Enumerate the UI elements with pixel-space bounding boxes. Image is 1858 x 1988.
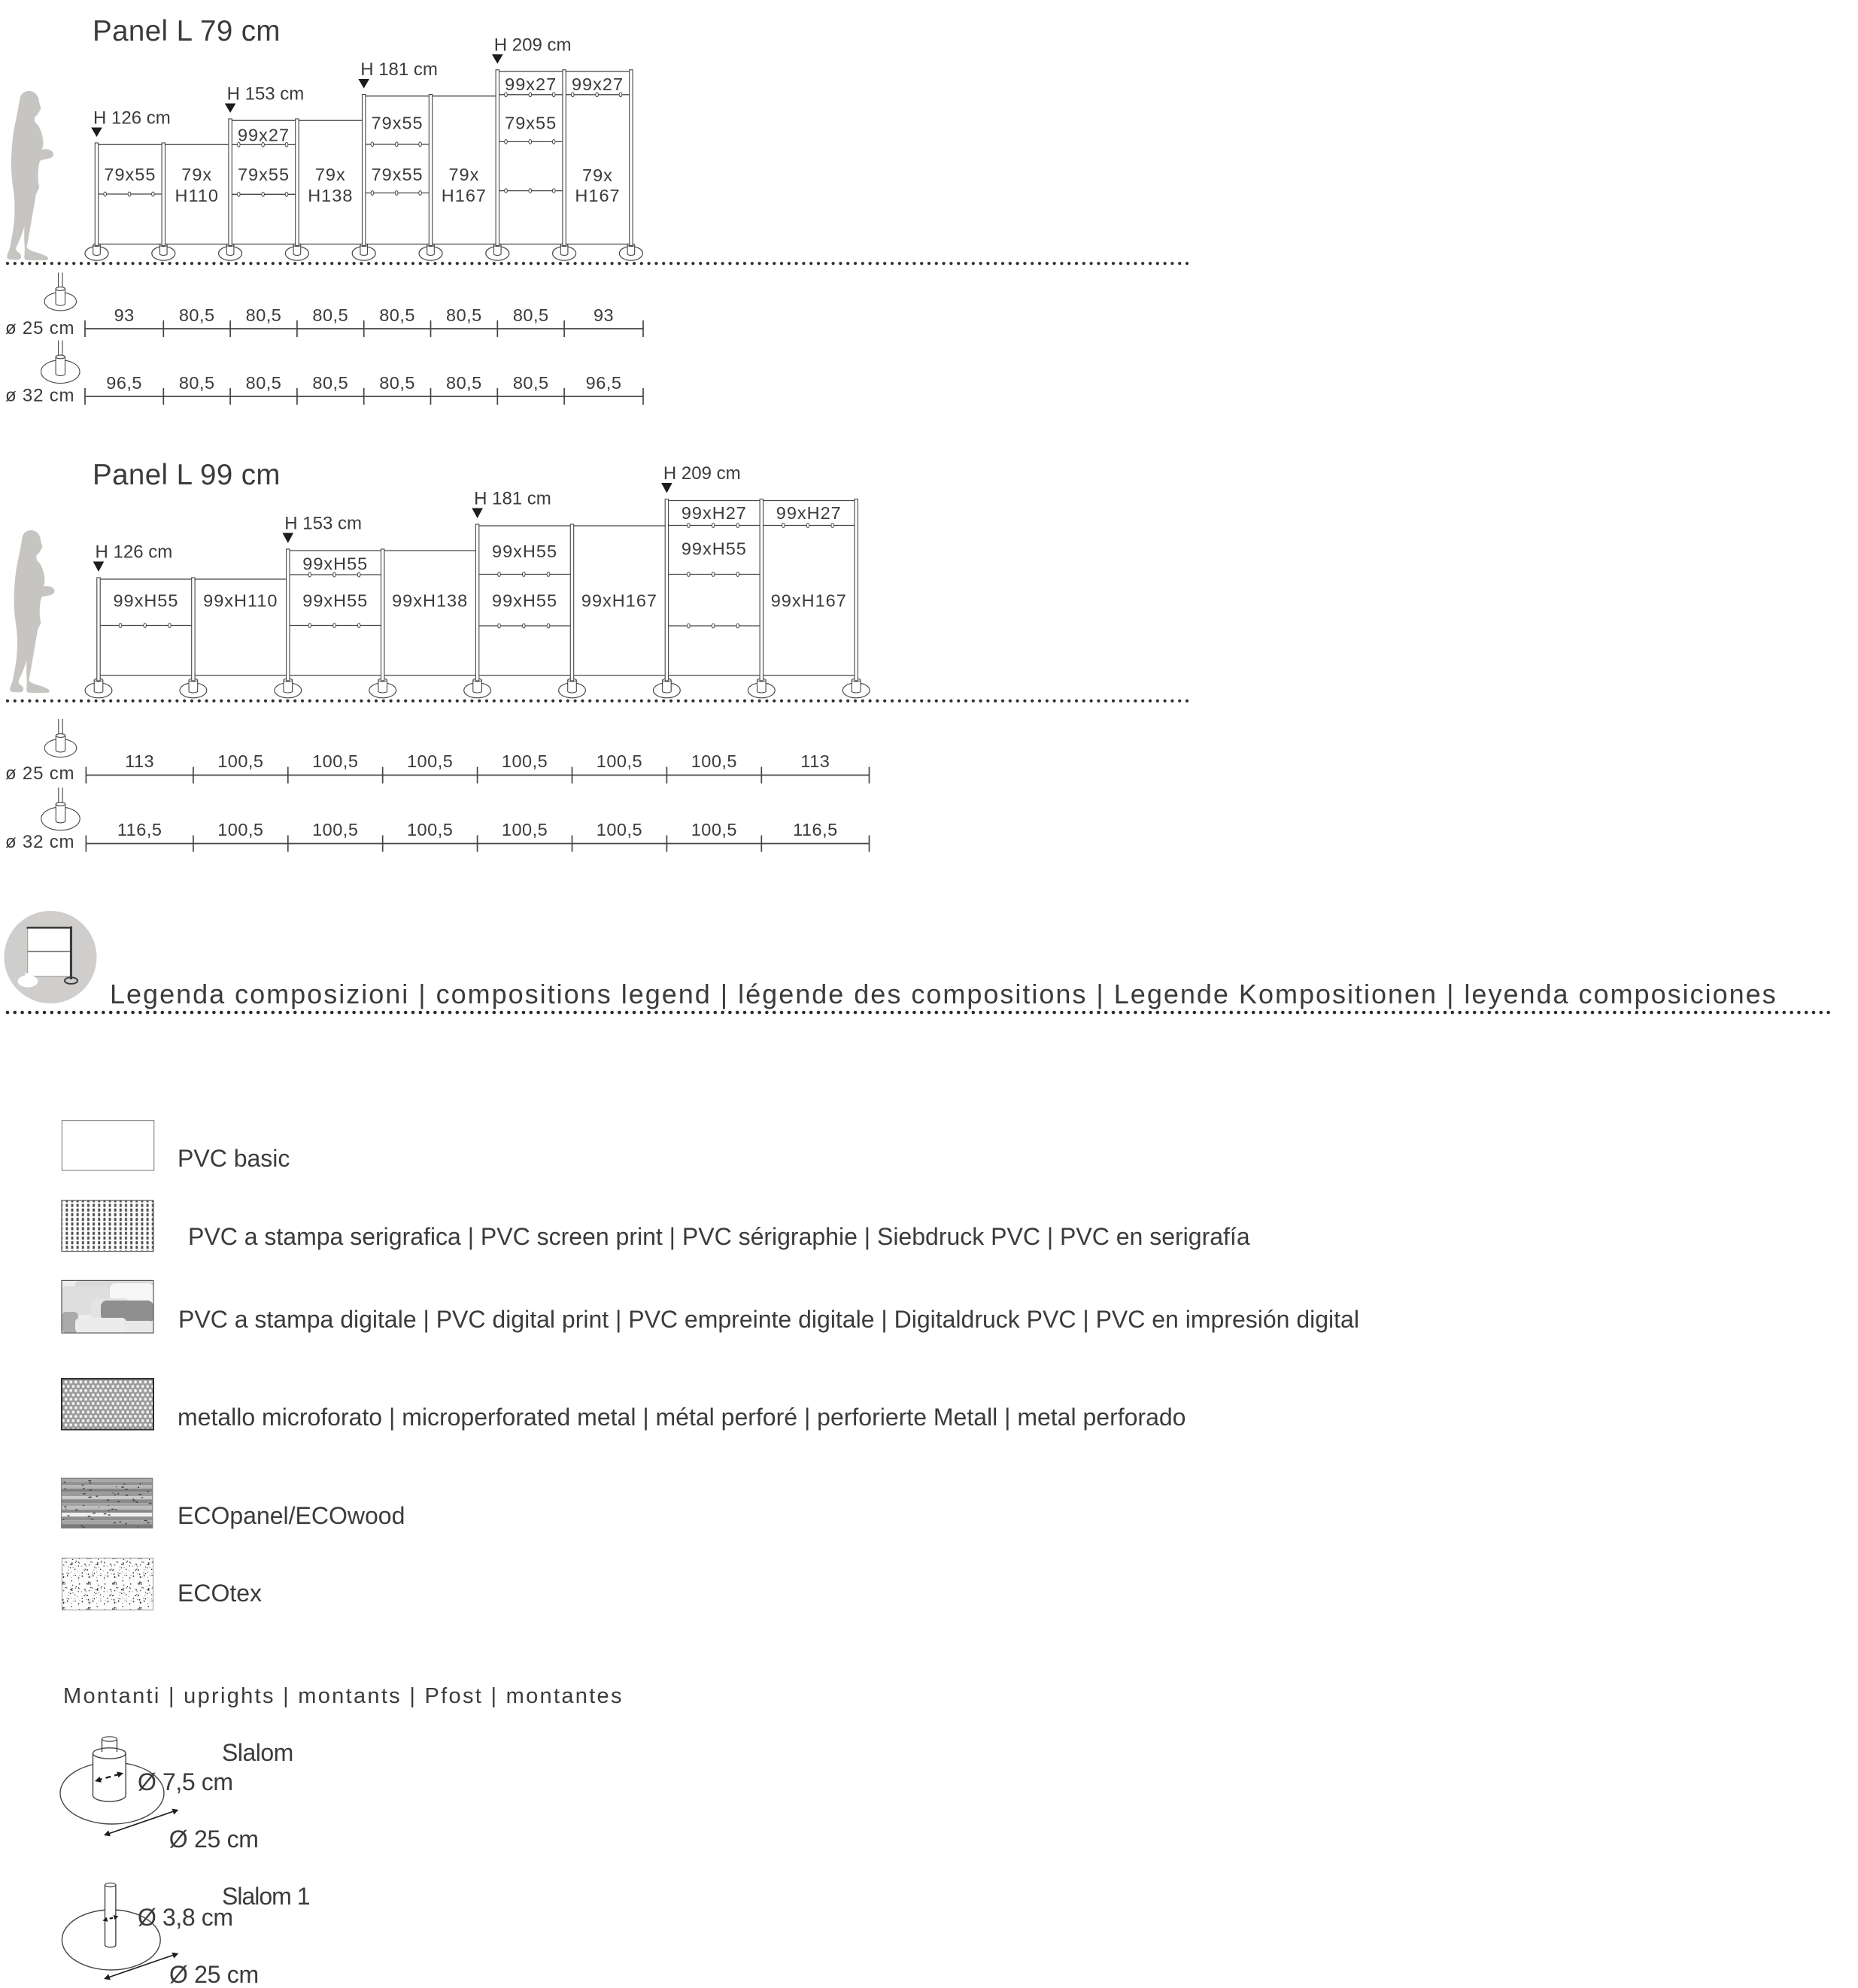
svg-text:ø 25 cm: ø 25 cm <box>5 318 74 338</box>
svg-text:99xH55: 99xH55 <box>113 591 178 611</box>
svg-text:100,5: 100,5 <box>597 820 642 839</box>
svg-text:Slalom 1: Slalom 1 <box>222 1883 310 1910</box>
svg-text:H110: H110 <box>175 186 218 205</box>
svg-text:H138: H138 <box>308 186 353 205</box>
svg-text:Panel L 99 cm: Panel L 99 cm <box>93 459 281 491</box>
svg-text:79x55: 79x55 <box>372 114 424 133</box>
svg-text:PVC a stampa serigrafica | PVC: PVC a stampa serigrafica | PVC screen pr… <box>188 1223 1250 1250</box>
svg-text:100,5: 100,5 <box>312 820 358 839</box>
svg-text:Ø 25 cm: Ø 25 cm <box>169 1826 259 1853</box>
svg-text:79x: 79x <box>582 165 613 185</box>
svg-text:H 153 cm: H 153 cm <box>284 514 362 534</box>
svg-text:79x: 79x <box>448 165 479 184</box>
svg-text:H167: H167 <box>442 186 487 205</box>
svg-text:80,5: 80,5 <box>179 373 215 393</box>
svg-text:80,5: 80,5 <box>246 305 282 325</box>
svg-text:80,5: 80,5 <box>379 373 415 393</box>
svg-text:100,5: 100,5 <box>502 820 548 839</box>
svg-text:99xH55: 99xH55 <box>302 554 368 574</box>
svg-text:Ø 25 cm: Ø 25 cm <box>169 1961 259 1988</box>
svg-text:99x27: 99x27 <box>505 74 557 94</box>
svg-text:80,5: 80,5 <box>513 373 549 393</box>
svg-text:116,5: 116,5 <box>117 820 162 839</box>
svg-text:PVC a stampa digitale | PVC di: PVC a stampa digitale | PVC digital prin… <box>178 1306 1359 1333</box>
svg-text:Legenda composizioni | composi: Legenda composizioni | compositions lege… <box>110 979 1778 1009</box>
svg-text:H 181 cm: H 181 cm <box>360 59 438 80</box>
svg-text:80,5: 80,5 <box>446 373 482 393</box>
svg-text:80,5: 80,5 <box>379 305 415 325</box>
svg-text:113: 113 <box>800 751 830 771</box>
svg-text:99xH110: 99xH110 <box>203 591 278 611</box>
svg-text:116,5: 116,5 <box>793 820 838 839</box>
svg-text:H 126 cm: H 126 cm <box>96 542 173 563</box>
svg-text:99xH167: 99xH167 <box>771 591 847 611</box>
svg-text:79x55: 79x55 <box>104 165 156 184</box>
svg-text:96,5: 96,5 <box>586 373 622 393</box>
svg-text:100,5: 100,5 <box>312 751 358 771</box>
svg-text:99x27: 99x27 <box>238 126 290 145</box>
svg-text:100,5: 100,5 <box>502 751 548 771</box>
svg-text:80,5: 80,5 <box>246 373 282 393</box>
svg-text:H167: H167 <box>575 186 620 205</box>
svg-text:Ø 7,5 cm: Ø 7,5 cm <box>138 1768 233 1795</box>
svg-text:100,5: 100,5 <box>217 751 263 771</box>
svg-text:79x: 79x <box>181 165 212 184</box>
svg-text:80,5: 80,5 <box>312 305 348 325</box>
svg-text:99xH55: 99xH55 <box>492 591 557 611</box>
svg-text:80,5: 80,5 <box>312 373 348 393</box>
svg-text:100,5: 100,5 <box>691 820 737 839</box>
svg-text:79x55: 79x55 <box>505 114 557 133</box>
svg-text:metallo microforato | microper: metallo microforato | microperforated me… <box>178 1404 1186 1431</box>
svg-text:H 153 cm: H 153 cm <box>227 84 305 105</box>
svg-text:99xH27: 99xH27 <box>682 503 747 523</box>
svg-text:99xH167: 99xH167 <box>581 591 657 611</box>
svg-text:ECOpanel/ECOwood: ECOpanel/ECOwood <box>178 1502 405 1529</box>
svg-text:93: 93 <box>114 305 135 325</box>
svg-text:ø 32 cm: ø 32 cm <box>5 832 74 852</box>
svg-text:100,5: 100,5 <box>597 751 642 771</box>
svg-text:Ø 3,8 cm: Ø 3,8 cm <box>138 1904 233 1931</box>
svg-text:100,5: 100,5 <box>691 751 737 771</box>
svg-text:PVC basic: PVC basic <box>178 1145 290 1172</box>
svg-text:99xH27: 99xH27 <box>776 503 842 523</box>
svg-text:Montanti | uprights | montant: Montanti | uprights | montants | Pfost |… <box>63 1684 624 1708</box>
svg-text:100,5: 100,5 <box>407 751 453 771</box>
svg-text:93: 93 <box>594 305 614 325</box>
svg-text:80,5: 80,5 <box>179 305 215 325</box>
svg-text:99xH138: 99xH138 <box>392 591 468 611</box>
svg-text:H 209 cm: H 209 cm <box>663 463 741 484</box>
svg-text:79x: 79x <box>315 165 346 184</box>
svg-text:113: 113 <box>125 751 154 771</box>
svg-text:99x27: 99x27 <box>572 74 624 94</box>
svg-text:96,5: 96,5 <box>106 373 142 393</box>
svg-text:Slalom: Slalom <box>222 1739 293 1766</box>
svg-text:H 209 cm: H 209 cm <box>494 35 572 55</box>
svg-text:100,5: 100,5 <box>407 820 453 839</box>
svg-text:Panel L 79 cm: Panel L 79 cm <box>93 15 281 47</box>
svg-text:79x55: 79x55 <box>238 165 290 184</box>
svg-text:80,5: 80,5 <box>446 305 482 325</box>
svg-text:ø 32 cm: ø 32 cm <box>5 386 74 406</box>
svg-text:ECOtex: ECOtex <box>178 1580 262 1607</box>
svg-text:ø 25 cm: ø 25 cm <box>5 763 74 784</box>
svg-text:99xH55: 99xH55 <box>682 539 747 559</box>
svg-text:99xH55: 99xH55 <box>492 542 557 561</box>
svg-text:H 126 cm: H 126 cm <box>93 108 171 129</box>
svg-text:H 181 cm: H 181 cm <box>474 489 551 509</box>
svg-text:100,5: 100,5 <box>217 820 263 839</box>
svg-text:79x55: 79x55 <box>372 165 424 184</box>
svg-text:80,5: 80,5 <box>513 305 549 325</box>
svg-text:99xH55: 99xH55 <box>302 591 368 611</box>
